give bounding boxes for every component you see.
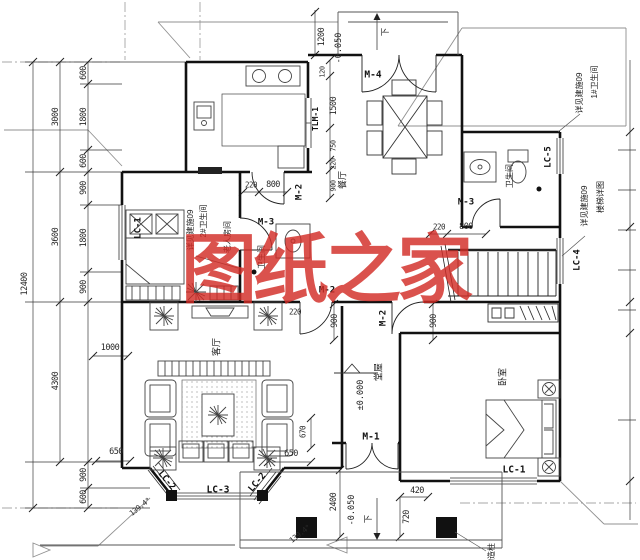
elevation-label: 下 <box>365 515 374 524</box>
dimension-label: 650 <box>284 450 298 459</box>
dimension-label: 900 <box>80 280 89 294</box>
door-window-code: M-4 <box>364 70 381 80</box>
bedroom-furniture <box>486 380 560 476</box>
dimension-label: 120 <box>320 66 327 77</box>
living-room-furniture <box>145 302 293 470</box>
door-window-code: M-1 <box>362 432 379 442</box>
door-window-code: M-2 <box>380 310 389 326</box>
dimension-label: 900 <box>430 314 439 328</box>
dimension-label: 900 <box>331 180 338 191</box>
dimension-label: 670 <box>299 426 307 438</box>
door-window-code: M-2 <box>296 184 305 200</box>
door-window-code: LC-3 <box>207 485 230 495</box>
dimension-label: 800 <box>266 181 280 190</box>
door-window-code: M-3 <box>258 219 274 228</box>
dimension-label: 1800 <box>80 229 89 247</box>
room-label: 卧室 <box>499 368 508 386</box>
door-window-code: LC-1 <box>503 465 526 475</box>
elevation-label: -0.050 <box>335 33 344 64</box>
dimension-label: 420 <box>410 487 424 496</box>
closet <box>488 304 558 322</box>
elevation-label: 下 <box>382 28 391 37</box>
dimension-label: 2400 <box>330 493 339 511</box>
dimension-label: 1200 <box>318 28 327 46</box>
benchmark-symbol <box>334 364 378 373</box>
dimension-label: 900 <box>331 314 340 328</box>
room-label: 堂屋 <box>375 363 384 381</box>
dimension-label: 220 <box>331 158 338 169</box>
room-label: 客厅 <box>213 338 222 356</box>
dimension-label: 720 <box>403 510 412 524</box>
room-label: 卫生间 <box>506 164 514 188</box>
dimension-label: 4300 <box>52 372 61 390</box>
dimension-label: 1800 <box>80 108 89 126</box>
axis-grid-lines <box>2 2 636 508</box>
staircase <box>441 244 556 302</box>
door-window-code: M-3 <box>458 199 474 208</box>
annotation-label: 详见建施09 <box>187 210 195 251</box>
annotation-label: 1#卫生间 <box>591 66 599 99</box>
dimension-label: 3000 <box>52 108 61 126</box>
bathroom1-fixtures <box>464 150 542 192</box>
room-label: 老人房间 <box>224 221 232 253</box>
annotation-label: 详见建施09 <box>581 186 589 227</box>
dimension-label: 650 <box>109 448 123 457</box>
dimension-label: 1500 <box>330 97 339 115</box>
floor-plan-linework <box>0 0 640 560</box>
dimension-label: 220 <box>245 181 257 189</box>
dimension-label: 800 <box>459 223 473 232</box>
door-window-code: LC-1 <box>135 217 144 239</box>
dimension-label: 600 <box>80 490 89 504</box>
dimension-label: 1000 <box>101 344 119 353</box>
door-window-code: M-2 <box>319 287 335 296</box>
annotation-label: 详见建施09 <box>576 73 584 114</box>
dimension-label: 12400 <box>21 272 30 295</box>
dimension-label: 900 <box>80 181 89 195</box>
dimension-label: 750 <box>331 140 338 151</box>
top-porch <box>338 12 458 55</box>
floor-plan-canvas: M-4TLM-1M-2M-3M-3M-2M-2M-1LC-1LC-1LC-2LC… <box>0 0 640 560</box>
dimension-label: 900 <box>80 468 89 482</box>
room-label: 餐厅 <box>339 171 348 189</box>
annotation-leaders <box>196 114 585 268</box>
dining-table <box>367 80 442 174</box>
elevation-label: ±0.000 <box>357 380 366 411</box>
dimension-label: 3600 <box>52 228 61 246</box>
annotation-label: 楼梯详图 <box>597 181 605 213</box>
door-window-code: LC-4 <box>574 249 583 271</box>
door-window-code: TLM-1 <box>312 107 320 131</box>
dimension-label: 220 <box>433 223 445 231</box>
dimension-label: 600 <box>80 154 89 168</box>
annotation-label: 构造柱 <box>488 543 496 560</box>
dimension-label: 220 <box>289 308 301 316</box>
annotation-label: 2#卫生间 <box>200 205 208 238</box>
kitchen-fixtures <box>194 66 305 168</box>
door-window-code: LC-5 <box>545 146 554 168</box>
dimension-label: 600 <box>80 66 89 80</box>
elevation-label: -0.050 <box>348 495 357 526</box>
room-label: 卫生间 <box>258 245 266 269</box>
